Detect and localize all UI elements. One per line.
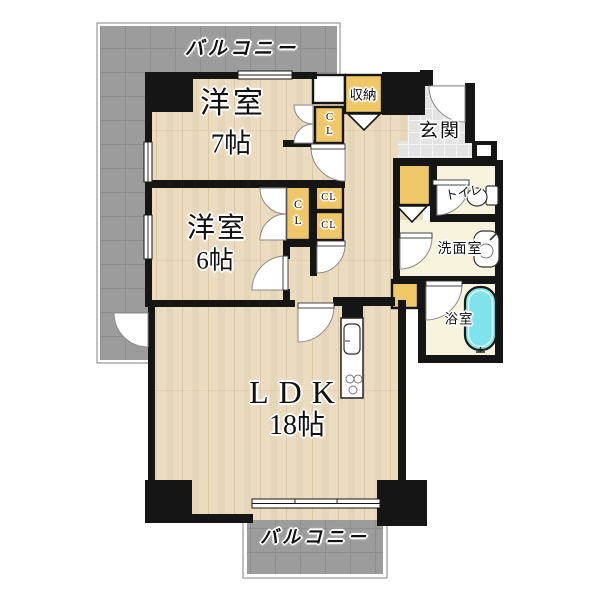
label-balcony-bottom: バルコニー [260, 528, 370, 546]
label-closet-cl: CL [324, 111, 335, 139]
floor-plan-drawing [0, 0, 600, 600]
label-storage: 収納 [350, 88, 377, 102]
label-closet-cl: CL [321, 193, 336, 204]
label-washroom: 洗面室 [438, 243, 483, 257]
hall-closet [395, 163, 430, 205]
label-closet-cl: CL [292, 197, 304, 229]
label-western7-name: 洋室 [200, 89, 266, 119]
wall-jog-hollow [477, 145, 491, 156]
kitchen-sink-icon [344, 324, 360, 354]
floor-plan: バルコニー 洋室 7帖 洋室 6帖 LDK 18帖 収納 CL CL CL CL… [0, 0, 600, 600]
label-ldk-size: 18帖 [269, 412, 325, 440]
label-closet-cl: CL [321, 221, 336, 232]
label-balcony-top: バルコニー [185, 40, 300, 59]
label-western7-size: 7帖 [211, 131, 252, 158]
closet-shelf-box [313, 75, 345, 103]
label-ldk-name: LDK [249, 376, 345, 408]
label-western6-size: 6帖 [196, 249, 234, 274]
label-entrance: 玄関 [419, 122, 461, 141]
label-western6-name: 洋室 [187, 215, 247, 243]
label-bathroom: 浴室 [445, 312, 474, 326]
